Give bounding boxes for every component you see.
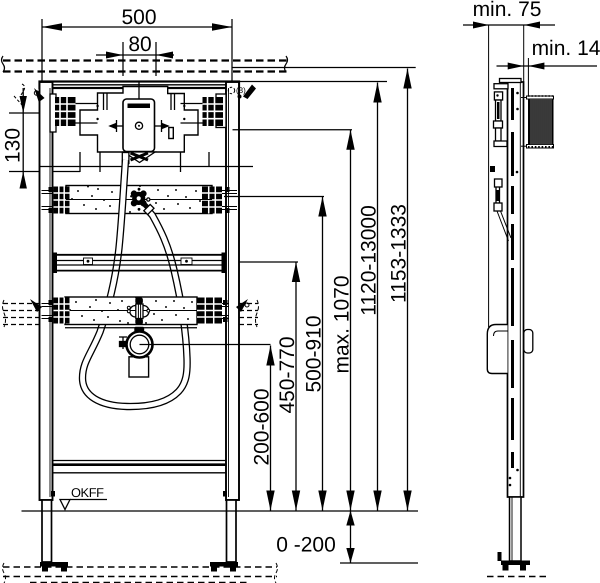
svg-text:min. 75: min. 75 <box>473 0 542 21</box>
svg-text:450-770: 450-770 <box>276 336 299 413</box>
svg-text:min. 14: min. 14 <box>532 37 600 60</box>
svg-text:1153-1333: 1153-1333 <box>387 204 410 303</box>
svg-text:OKFF: OKFF <box>71 485 104 500</box>
svg-text:1120-13000: 1120-13000 <box>357 205 380 316</box>
svg-text:max. 1070: max. 1070 <box>330 275 353 373</box>
svg-text:0 -200: 0 -200 <box>276 534 336 557</box>
svg-text:500: 500 <box>121 6 156 29</box>
svg-text:130: 130 <box>2 128 25 163</box>
svg-text:80: 80 <box>128 33 151 56</box>
svg-text:200-600: 200-600 <box>250 388 273 465</box>
svg-text:(8): (8) <box>236 86 246 95</box>
svg-text:500-910: 500-910 <box>302 315 325 392</box>
